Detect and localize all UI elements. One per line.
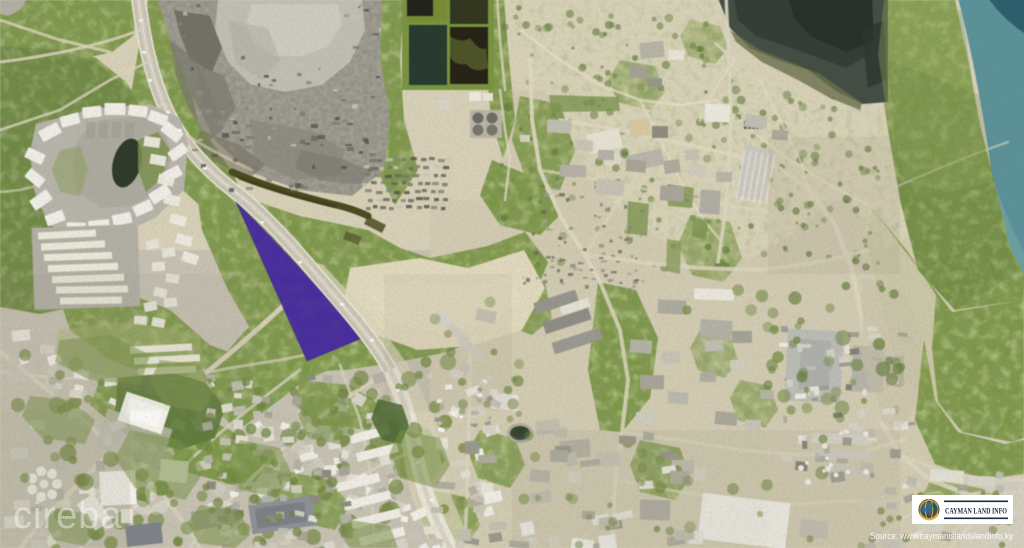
svg-text:cireba: cireba: [13, 495, 123, 537]
svg-text:Source: www.caymanislandslandi: Source: www.caymanislandslandinfo.ky: [870, 531, 1013, 542]
svg-text:CAYMAN LAND INFO: CAYMAN LAND INFO: [945, 506, 1007, 516]
